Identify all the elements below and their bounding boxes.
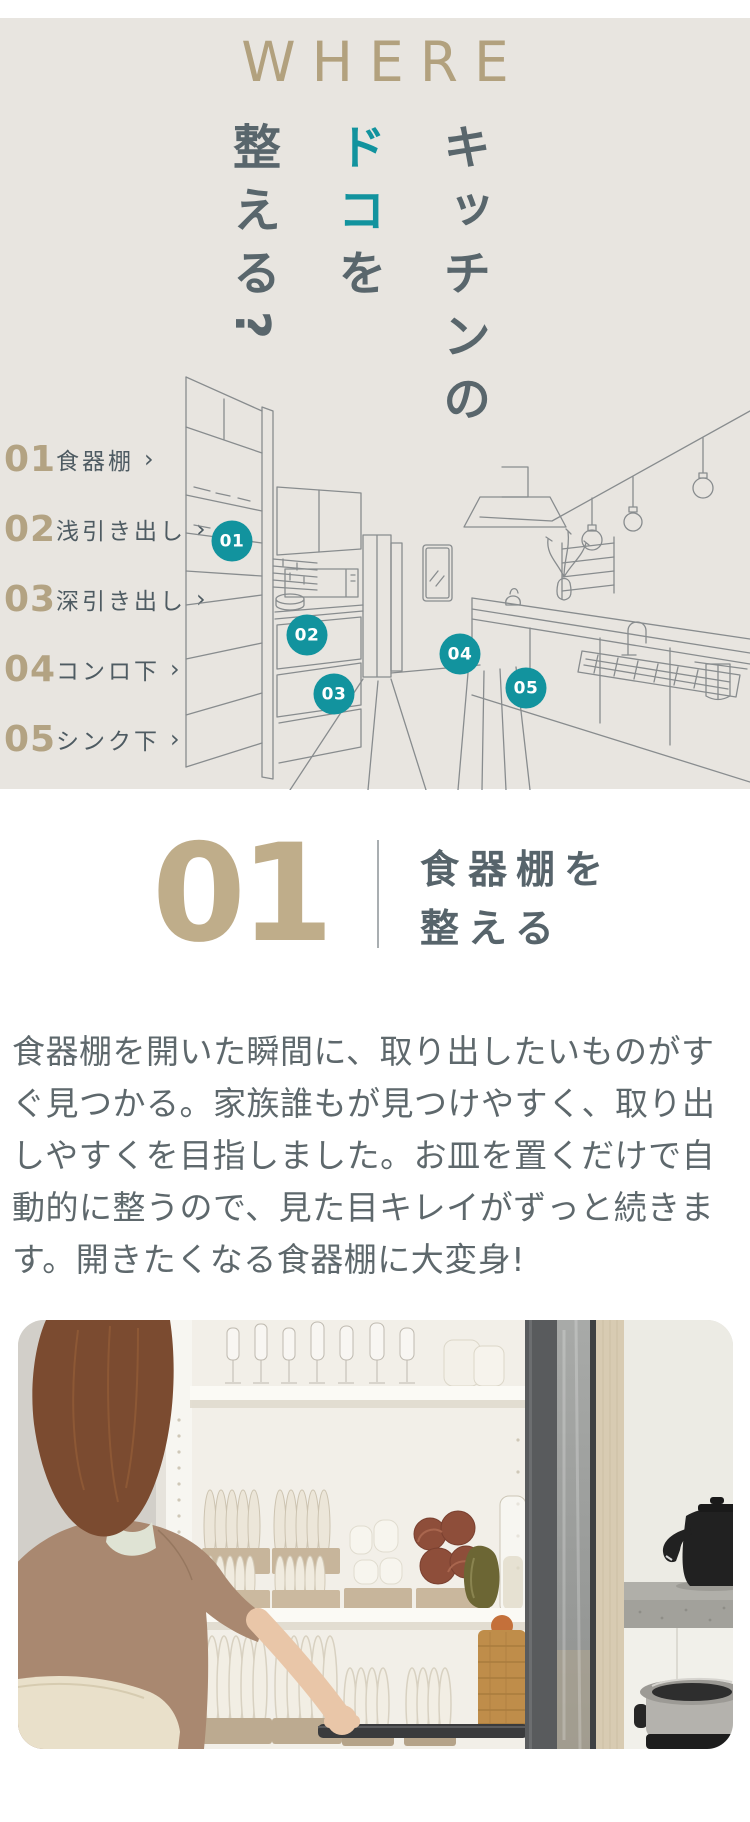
photo-illustration [18, 1320, 733, 1749]
hero-section: WHERE キッチンのドコを整える? 01食器棚›02浅引き出し›03深引き出し… [0, 18, 750, 789]
menu-item-label: シンク下 [56, 722, 160, 756]
headline-accent-text: ドコ [329, 122, 385, 248]
product-photo [18, 1320, 733, 1749]
menu-item-number: 01 [4, 439, 56, 480]
menu-item-label: コンロ下 [56, 652, 160, 686]
headline-text: 整える? [224, 122, 280, 354]
feature-title: 食器棚を 整える [420, 841, 612, 959]
hero-eyebrow-where: WHERE [0, 30, 750, 94]
headline-column-2: ドコを [333, 122, 381, 311]
feature-number: 01 [152, 838, 328, 950]
kitchen-marker-03[interactable]: 03 [314, 674, 355, 715]
headline-column-3: 整える? [228, 122, 276, 354]
kitchen-marker-01[interactable]: 01 [212, 521, 253, 562]
menu-item-label: 食器棚 [56, 442, 134, 476]
kitchen-marker-04[interactable]: 04 [440, 634, 481, 675]
feature-divider [377, 840, 379, 948]
menu-item-number: 05 [4, 719, 56, 760]
menu-item-number: 03 [4, 579, 56, 620]
feature-title-line1: 食器棚を [420, 841, 612, 900]
page: WHERE キッチンのドコを整える? 01食器棚›02浅引き出し›03深引き出し… [0, 0, 750, 1822]
kitchen-line-illustration [150, 367, 750, 790]
kitchen-marker-05[interactable]: 05 [506, 668, 547, 709]
feature-body: 食器棚を開いた瞬間に、取り出したいものがすぐ見つかる。家族誰もが見つけやすく、取… [12, 1026, 742, 1286]
kitchen-marker-02[interactable]: 02 [287, 615, 328, 656]
headline-text: を [329, 248, 385, 311]
feature-title-line2: 整える [420, 900, 612, 959]
menu-item-number: 04 [4, 649, 56, 690]
menu-item-number: 02 [4, 509, 56, 550]
